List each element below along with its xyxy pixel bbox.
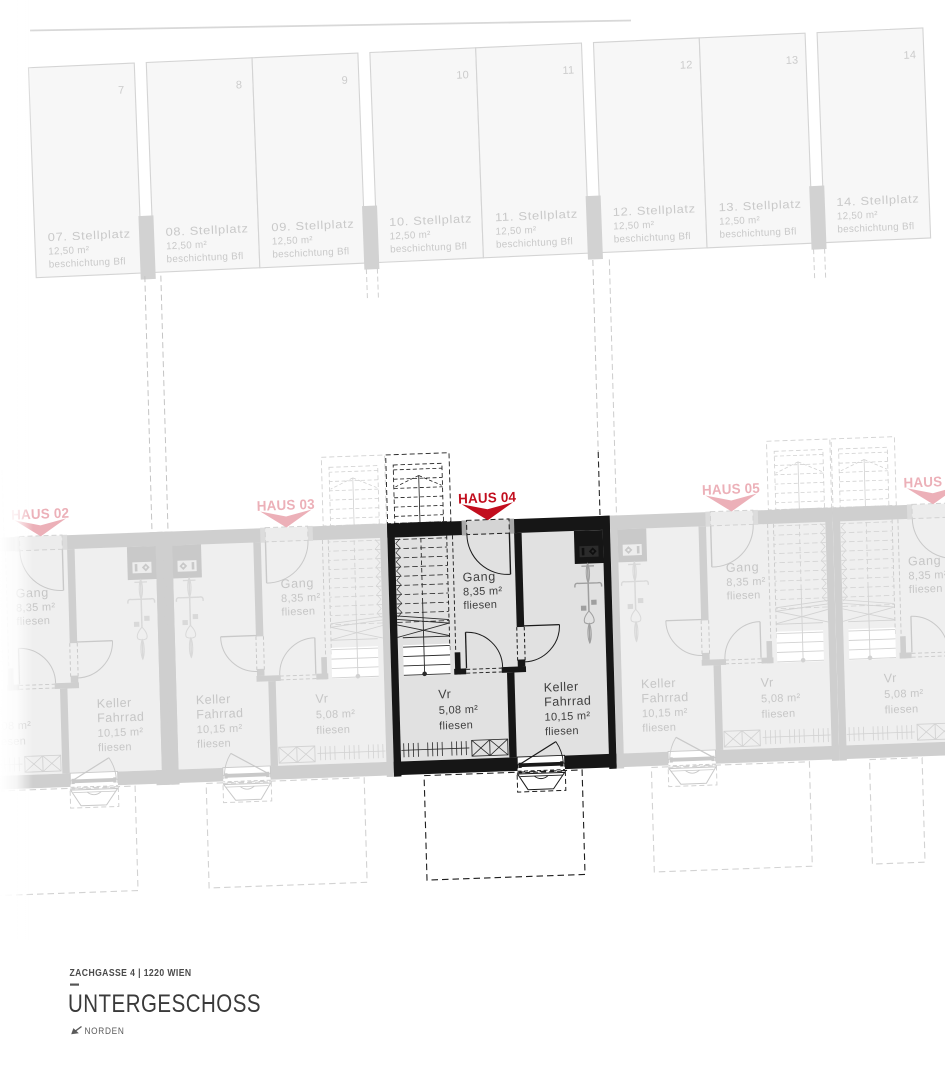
svg-text:fliesen: fliesen [98, 741, 132, 754]
svg-text:fliesen: fliesen [197, 738, 231, 751]
svg-text:8,35 m²: 8,35 m² [463, 585, 503, 598]
svg-text:12,50 m²: 12,50 m² [390, 230, 432, 243]
svg-text:Gang: Gang [462, 569, 496, 584]
svg-text:12,50 m²: 12,50 m² [166, 240, 208, 253]
svg-text:fliesen: fliesen [909, 583, 943, 596]
svg-text:12,50 m²: 12,50 m² [495, 225, 537, 238]
svg-text:ZACHGASSE 4 | 1220 WIEN: ZACHGASSE 4 | 1220 WIEN [70, 967, 192, 979]
svg-text:Vr: Vr [438, 687, 451, 701]
svg-text:Vr: Vr [315, 691, 328, 705]
svg-text:fliesen: fliesen [761, 708, 795, 721]
svg-text:HAUS 06: HAUS 06 [903, 473, 945, 491]
svg-text:8,35 m²: 8,35 m² [908, 569, 945, 582]
svg-text:5,08 m²: 5,08 m² [439, 704, 479, 717]
svg-text:Vr: Vr [760, 675, 773, 689]
svg-text:5,08 m²: 5,08 m² [316, 708, 356, 721]
svg-text:12,50 m²: 12,50 m² [837, 210, 879, 223]
svg-text:UNTERGESCHOSS: UNTERGESCHOSS [68, 990, 261, 1018]
svg-text:Fahrrad: Fahrrad [544, 694, 592, 710]
svg-text:Keller: Keller [544, 679, 579, 694]
svg-text:Fahrrad: Fahrrad [97, 710, 145, 726]
svg-text:10,15 m²: 10,15 m² [544, 710, 590, 724]
svg-text:Keller: Keller [97, 696, 132, 711]
svg-text:10,15 m²: 10,15 m² [97, 726, 143, 740]
svg-text:10,15 m²: 10,15 m² [642, 707, 688, 721]
svg-text:14: 14 [903, 49, 916, 62]
svg-text:9: 9 [341, 75, 348, 87]
svg-text:Fahrrad: Fahrrad [196, 706, 244, 722]
svg-text:12,50 m²: 12,50 m² [272, 235, 314, 248]
svg-text:12,50 m²: 12,50 m² [613, 220, 655, 233]
svg-text:Keller: Keller [196, 692, 231, 707]
svg-text:Gang: Gang [280, 576, 314, 591]
svg-text:12,50 m²: 12,50 m² [719, 215, 761, 228]
svg-text:Fahrrad: Fahrrad [641, 690, 689, 706]
svg-text:7: 7 [118, 85, 125, 97]
svg-text:12,50 m²: 12,50 m² [48, 245, 90, 258]
svg-text:10: 10 [456, 69, 469, 82]
svg-text:fliesen: fliesen [281, 605, 315, 618]
svg-text:fliesen: fliesen [439, 719, 473, 732]
svg-text:8: 8 [236, 79, 243, 91]
svg-text:10,15 m²: 10,15 m² [197, 723, 243, 737]
svg-text:5,08 m²: 5,08 m² [884, 688, 924, 701]
svg-text:8,35 m²: 8,35 m² [726, 576, 766, 589]
svg-text:8,35 m²: 8,35 m² [281, 592, 321, 605]
svg-text:fliesen: fliesen [316, 724, 350, 737]
svg-text:fliesen: fliesen [727, 589, 761, 602]
svg-text:13: 13 [786, 55, 799, 68]
svg-text:5,08 m²: 5,08 m² [761, 692, 801, 705]
svg-text:fliesen: fliesen [545, 725, 579, 738]
svg-text:fliesen: fliesen [884, 703, 918, 716]
svg-text:Gang: Gang [726, 560, 760, 575]
svg-text:Vr: Vr [884, 671, 897, 685]
svg-text:NORDEN: NORDEN [85, 1026, 125, 1037]
svg-text:fliesen: fliesen [463, 599, 497, 612]
svg-text:Gang: Gang [908, 553, 942, 568]
svg-text:11: 11 [562, 64, 574, 77]
svg-text:fliesen: fliesen [642, 722, 676, 735]
svg-text:12: 12 [680, 59, 693, 72]
svg-text:Keller: Keller [641, 676, 676, 691]
